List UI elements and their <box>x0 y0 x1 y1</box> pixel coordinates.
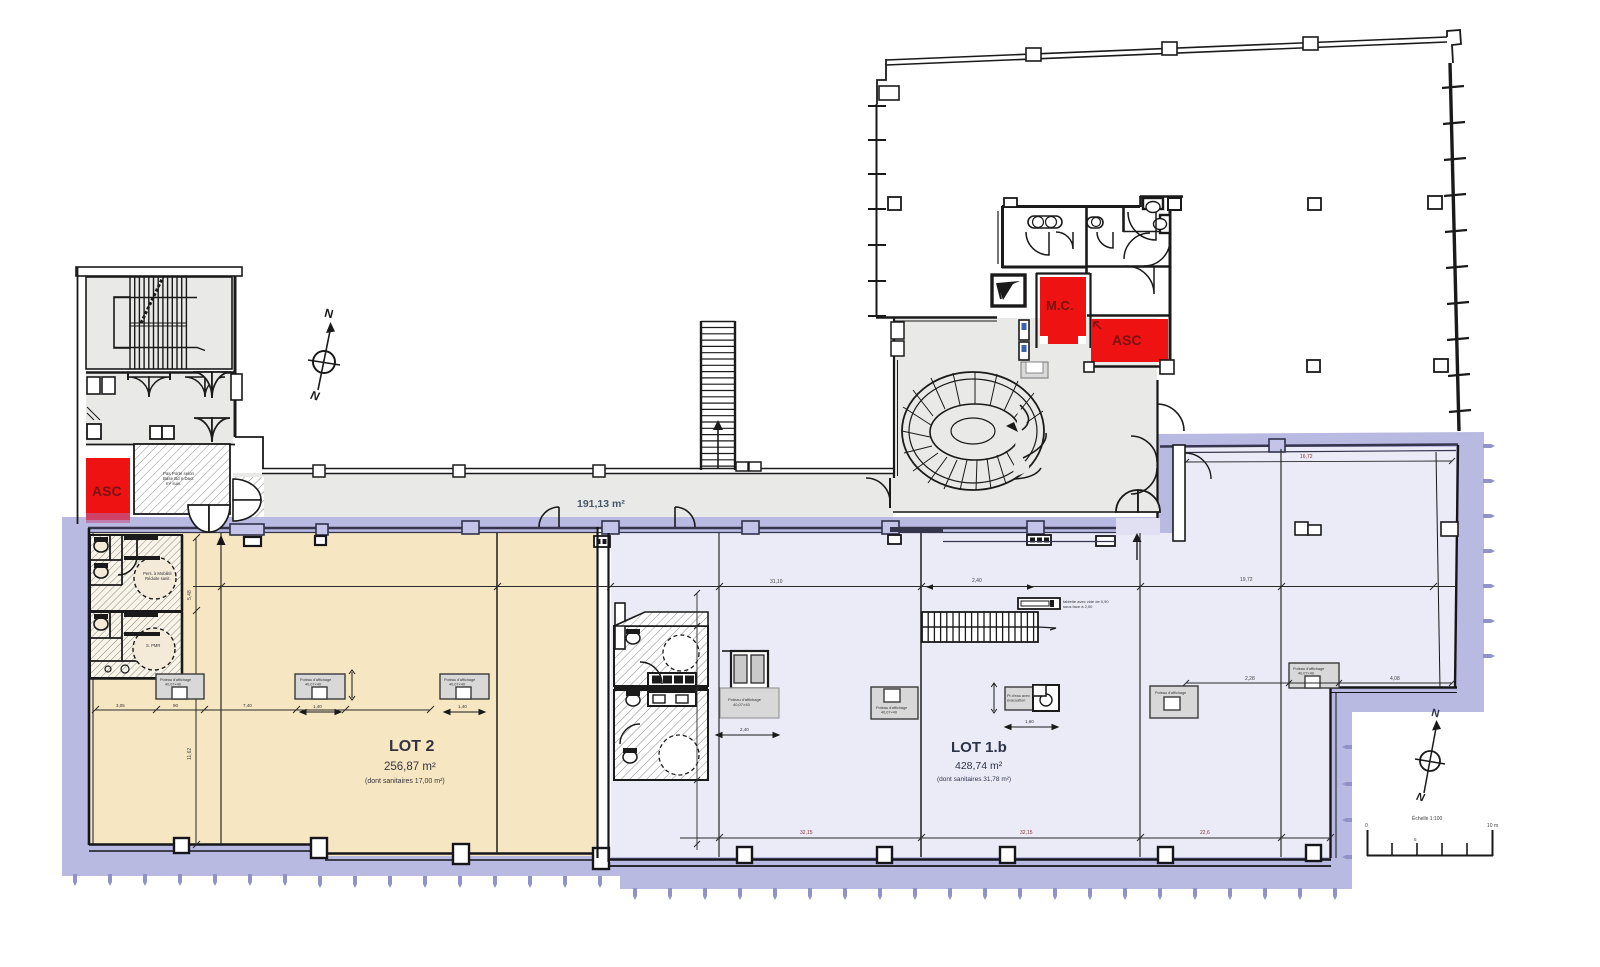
svg-text:7,40: 7,40 <box>243 703 252 708</box>
svg-text:Échelle 1:100: Échelle 1:100 <box>1412 815 1443 822</box>
svg-text:40,07×40: 40,07×40 <box>733 702 751 707</box>
svg-text:32,15: 32,15 <box>800 830 813 836</box>
svg-text:5,48: 5,48 <box>187 590 193 600</box>
svg-text:Poteau d'affichage: Poteau d'affichage <box>876 706 907 710</box>
svg-text:sous face à 2,00: sous face à 2,00 <box>1063 604 1093 609</box>
svg-text:40,07×40: 40,07×40 <box>1298 672 1314 676</box>
svg-text:Pt d'eau avec: Pt d'eau avec <box>1007 694 1030 698</box>
svg-text:ASC: ASC <box>1112 332 1142 348</box>
svg-text:90: 90 <box>173 703 179 708</box>
svg-text:40,07×40: 40,07×40 <box>165 683 181 687</box>
svg-text:2,40: 2,40 <box>740 727 749 732</box>
svg-text:M.C.: M.C. <box>1046 298 1073 313</box>
svg-text:m² suiv.: m² suiv. <box>166 481 181 486</box>
svg-text:11,62: 11,62 <box>187 748 193 760</box>
svg-text:(dont sanitaires 17,00 m²): (dont sanitaires 17,00 m²) <box>365 778 445 785</box>
svg-text:40,07×40: 40,07×40 <box>449 683 465 687</box>
svg-text:LOT 1.b: LOT 1.b <box>951 739 1007 756</box>
svg-text:0: 0 <box>1365 823 1368 829</box>
svg-text:2,40: 2,40 <box>972 578 982 584</box>
svg-text:32,15: 32,15 <box>1020 830 1033 836</box>
svg-text:ASC: ASC <box>92 483 122 499</box>
svg-text:19,72: 19,72 <box>1240 577 1253 583</box>
svg-text:(dont sanitaires 31,78 m²): (dont sanitaires 31,78 m²) <box>937 776 1011 783</box>
svg-text:4,08: 4,08 <box>1390 676 1400 682</box>
svg-text:22,6: 22,6 <box>1200 830 1210 836</box>
svg-text:Poteau d'affichage: Poteau d'affichage <box>444 678 475 682</box>
svg-text:191,13 m²: 191,13 m² <box>577 498 625 510</box>
svg-text:10 m: 10 m <box>1487 823 1498 829</box>
svg-text:S. PMR: S. PMR <box>146 643 160 648</box>
svg-text:31,10: 31,10 <box>770 579 783 585</box>
svg-text:LOT 2: LOT 2 <box>389 738 434 755</box>
svg-text:40,07×40: 40,07×40 <box>881 711 897 715</box>
svg-text:1,40: 1,40 <box>458 704 467 709</box>
svg-text:2,28: 2,28 <box>1245 676 1255 682</box>
svg-text:428,74 m²: 428,74 m² <box>955 760 1003 772</box>
svg-text:Poteau d'affichage: Poteau d'affichage <box>300 678 331 682</box>
svg-text:256,87 m²: 256,87 m² <box>384 761 436 773</box>
svg-text:16,72: 16,72 <box>1300 454 1313 460</box>
svg-text:3,05: 3,05 <box>116 703 125 708</box>
svg-text:1,60: 1,60 <box>1025 719 1034 724</box>
svg-text:Poteau d'affichage: Poteau d'affichage <box>1293 667 1324 671</box>
svg-text:40,07×40: 40,07×40 <box>305 683 321 687</box>
svg-text:Réduite sanit.: Réduite sanit. <box>145 576 171 581</box>
svg-text:1,40: 1,40 <box>313 704 322 709</box>
svg-text:évacuation: évacuation <box>1007 699 1025 703</box>
svg-text:Poteau d'affichage: Poteau d'affichage <box>160 678 191 682</box>
svg-text:Poteau d'affichage: Poteau d'affichage <box>1155 691 1186 695</box>
